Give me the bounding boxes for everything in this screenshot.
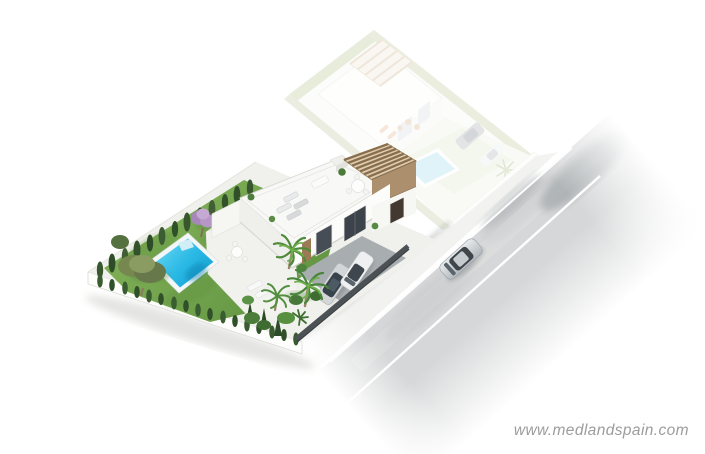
render-canvas: www.medlandspain.com [0,0,705,454]
villa-render-svg [0,0,705,454]
watermark-text: www.medlandspain.com [514,422,689,440]
